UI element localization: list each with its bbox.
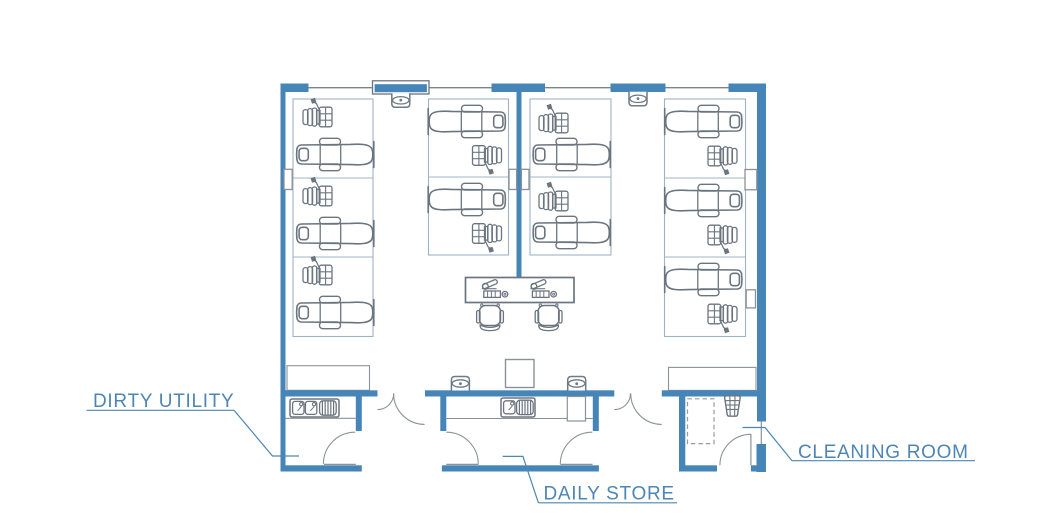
- svg-text:DAILY STORE: DAILY STORE: [544, 484, 675, 505]
- svg-text:DIRTY UTILITY: DIRTY UTILITY: [93, 391, 234, 412]
- svg-text:CLEANING ROOM: CLEANING ROOM: [798, 442, 969, 463]
